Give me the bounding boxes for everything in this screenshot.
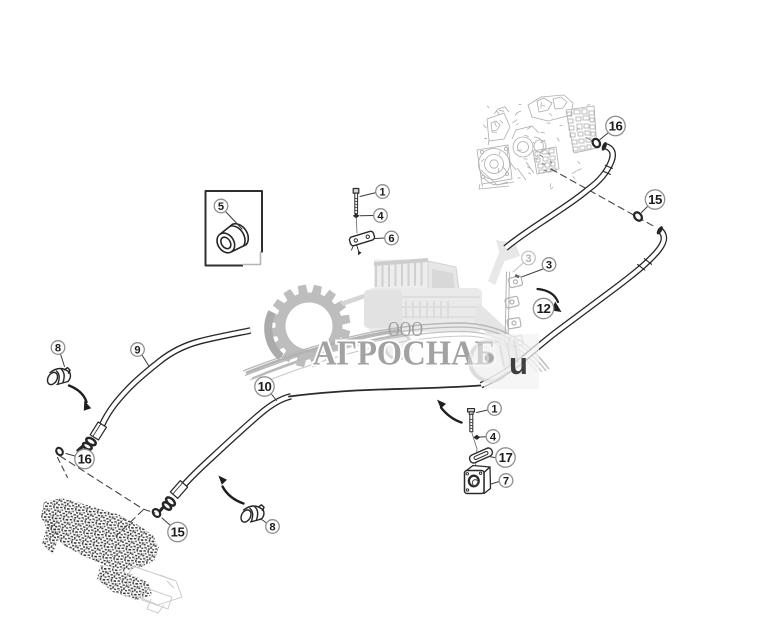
svg-text:u: u <box>509 346 528 381</box>
svg-text:15: 15 <box>171 525 185 540</box>
svg-text:3: 3 <box>546 259 552 271</box>
svg-text:4: 4 <box>377 210 384 222</box>
svg-text:7: 7 <box>503 475 509 487</box>
svg-text:4: 4 <box>490 431 497 443</box>
svg-text:17: 17 <box>499 450 513 465</box>
svg-text:1: 1 <box>379 186 385 198</box>
svg-text:5: 5 <box>218 201 224 213</box>
svg-text:15: 15 <box>648 192 662 207</box>
svg-text:16: 16 <box>609 119 623 134</box>
svg-text:1: 1 <box>491 403 497 415</box>
svg-text:8: 8 <box>55 342 61 354</box>
svg-text:6: 6 <box>388 233 394 245</box>
svg-text:12: 12 <box>537 301 551 316</box>
svg-text:3: 3 <box>525 253 531 265</box>
svg-text:16: 16 <box>78 452 92 467</box>
svg-text:10: 10 <box>258 379 272 394</box>
svg-text:9: 9 <box>134 344 140 356</box>
svg-text:8: 8 <box>269 521 275 533</box>
svg-text:АГРОСНАБ: АГРОСНАБ <box>313 335 496 373</box>
